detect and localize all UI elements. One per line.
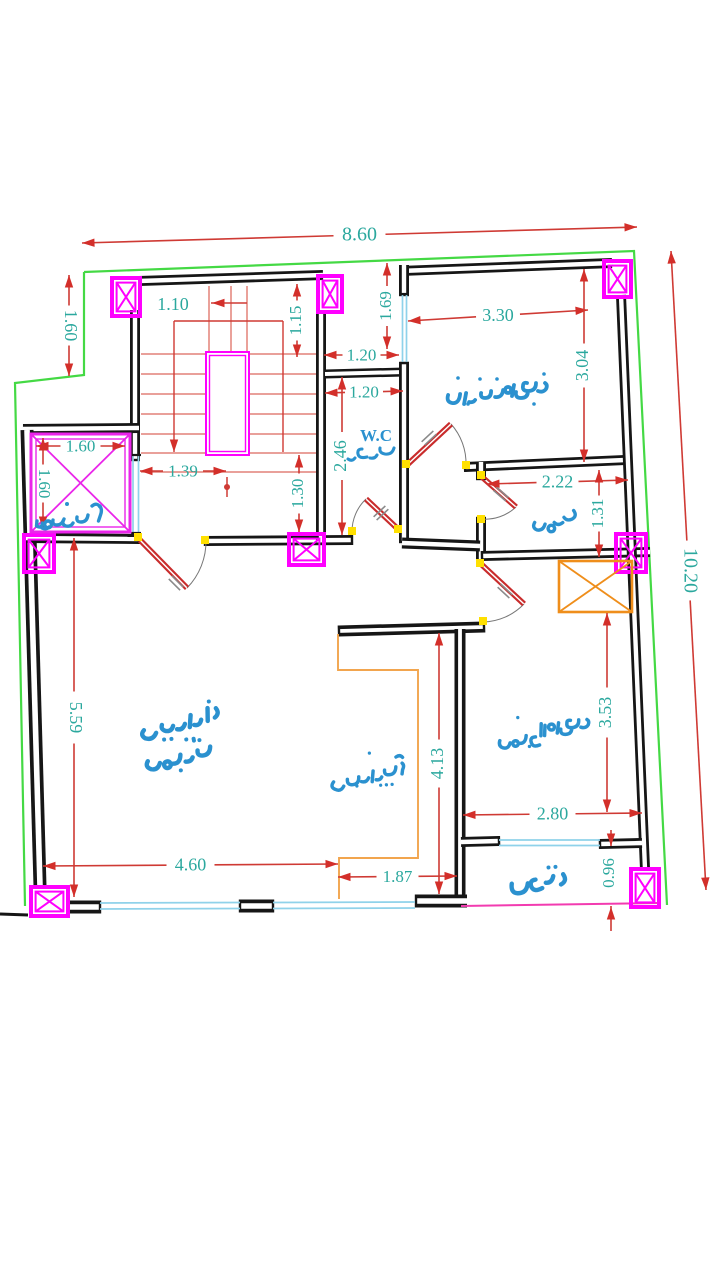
svg-text:2.46: 2.46 [330,440,350,472]
svg-text:1.15: 1.15 [286,306,305,336]
svg-text:2.22: 2.22 [542,472,574,492]
svg-text:2.80: 2.80 [537,804,569,824]
svg-text:8.60: 8.60 [342,224,377,246]
svg-text:1.31: 1.31 [588,499,607,529]
svg-text:5.59: 5.59 [66,702,86,734]
svg-text:1.60: 1.60 [66,437,96,456]
svg-text:10.20: 10.20 [680,548,702,593]
svg-text:3.53: 3.53 [595,697,615,729]
svg-text:1.60: 1.60 [35,469,54,499]
svg-text:4.13: 4.13 [427,748,447,780]
svg-text:1.30: 1.30 [288,479,307,509]
svg-text:1.20: 1.20 [349,383,379,402]
svg-text:4.60: 4.60 [175,855,207,875]
svg-text:3.30: 3.30 [482,305,514,325]
svg-text:1.10: 1.10 [157,294,189,314]
svg-text:3.04: 3.04 [572,350,592,382]
svg-text:1.60: 1.60 [61,310,81,342]
svg-text:1.87: 1.87 [383,867,413,886]
svg-text:1.69: 1.69 [376,291,395,321]
svg-text:0.96: 0.96 [599,858,618,888]
svg-text:W.C: W.C [360,426,392,445]
svg-text:1.20: 1.20 [347,346,377,365]
svg-text:1.39: 1.39 [168,462,198,481]
